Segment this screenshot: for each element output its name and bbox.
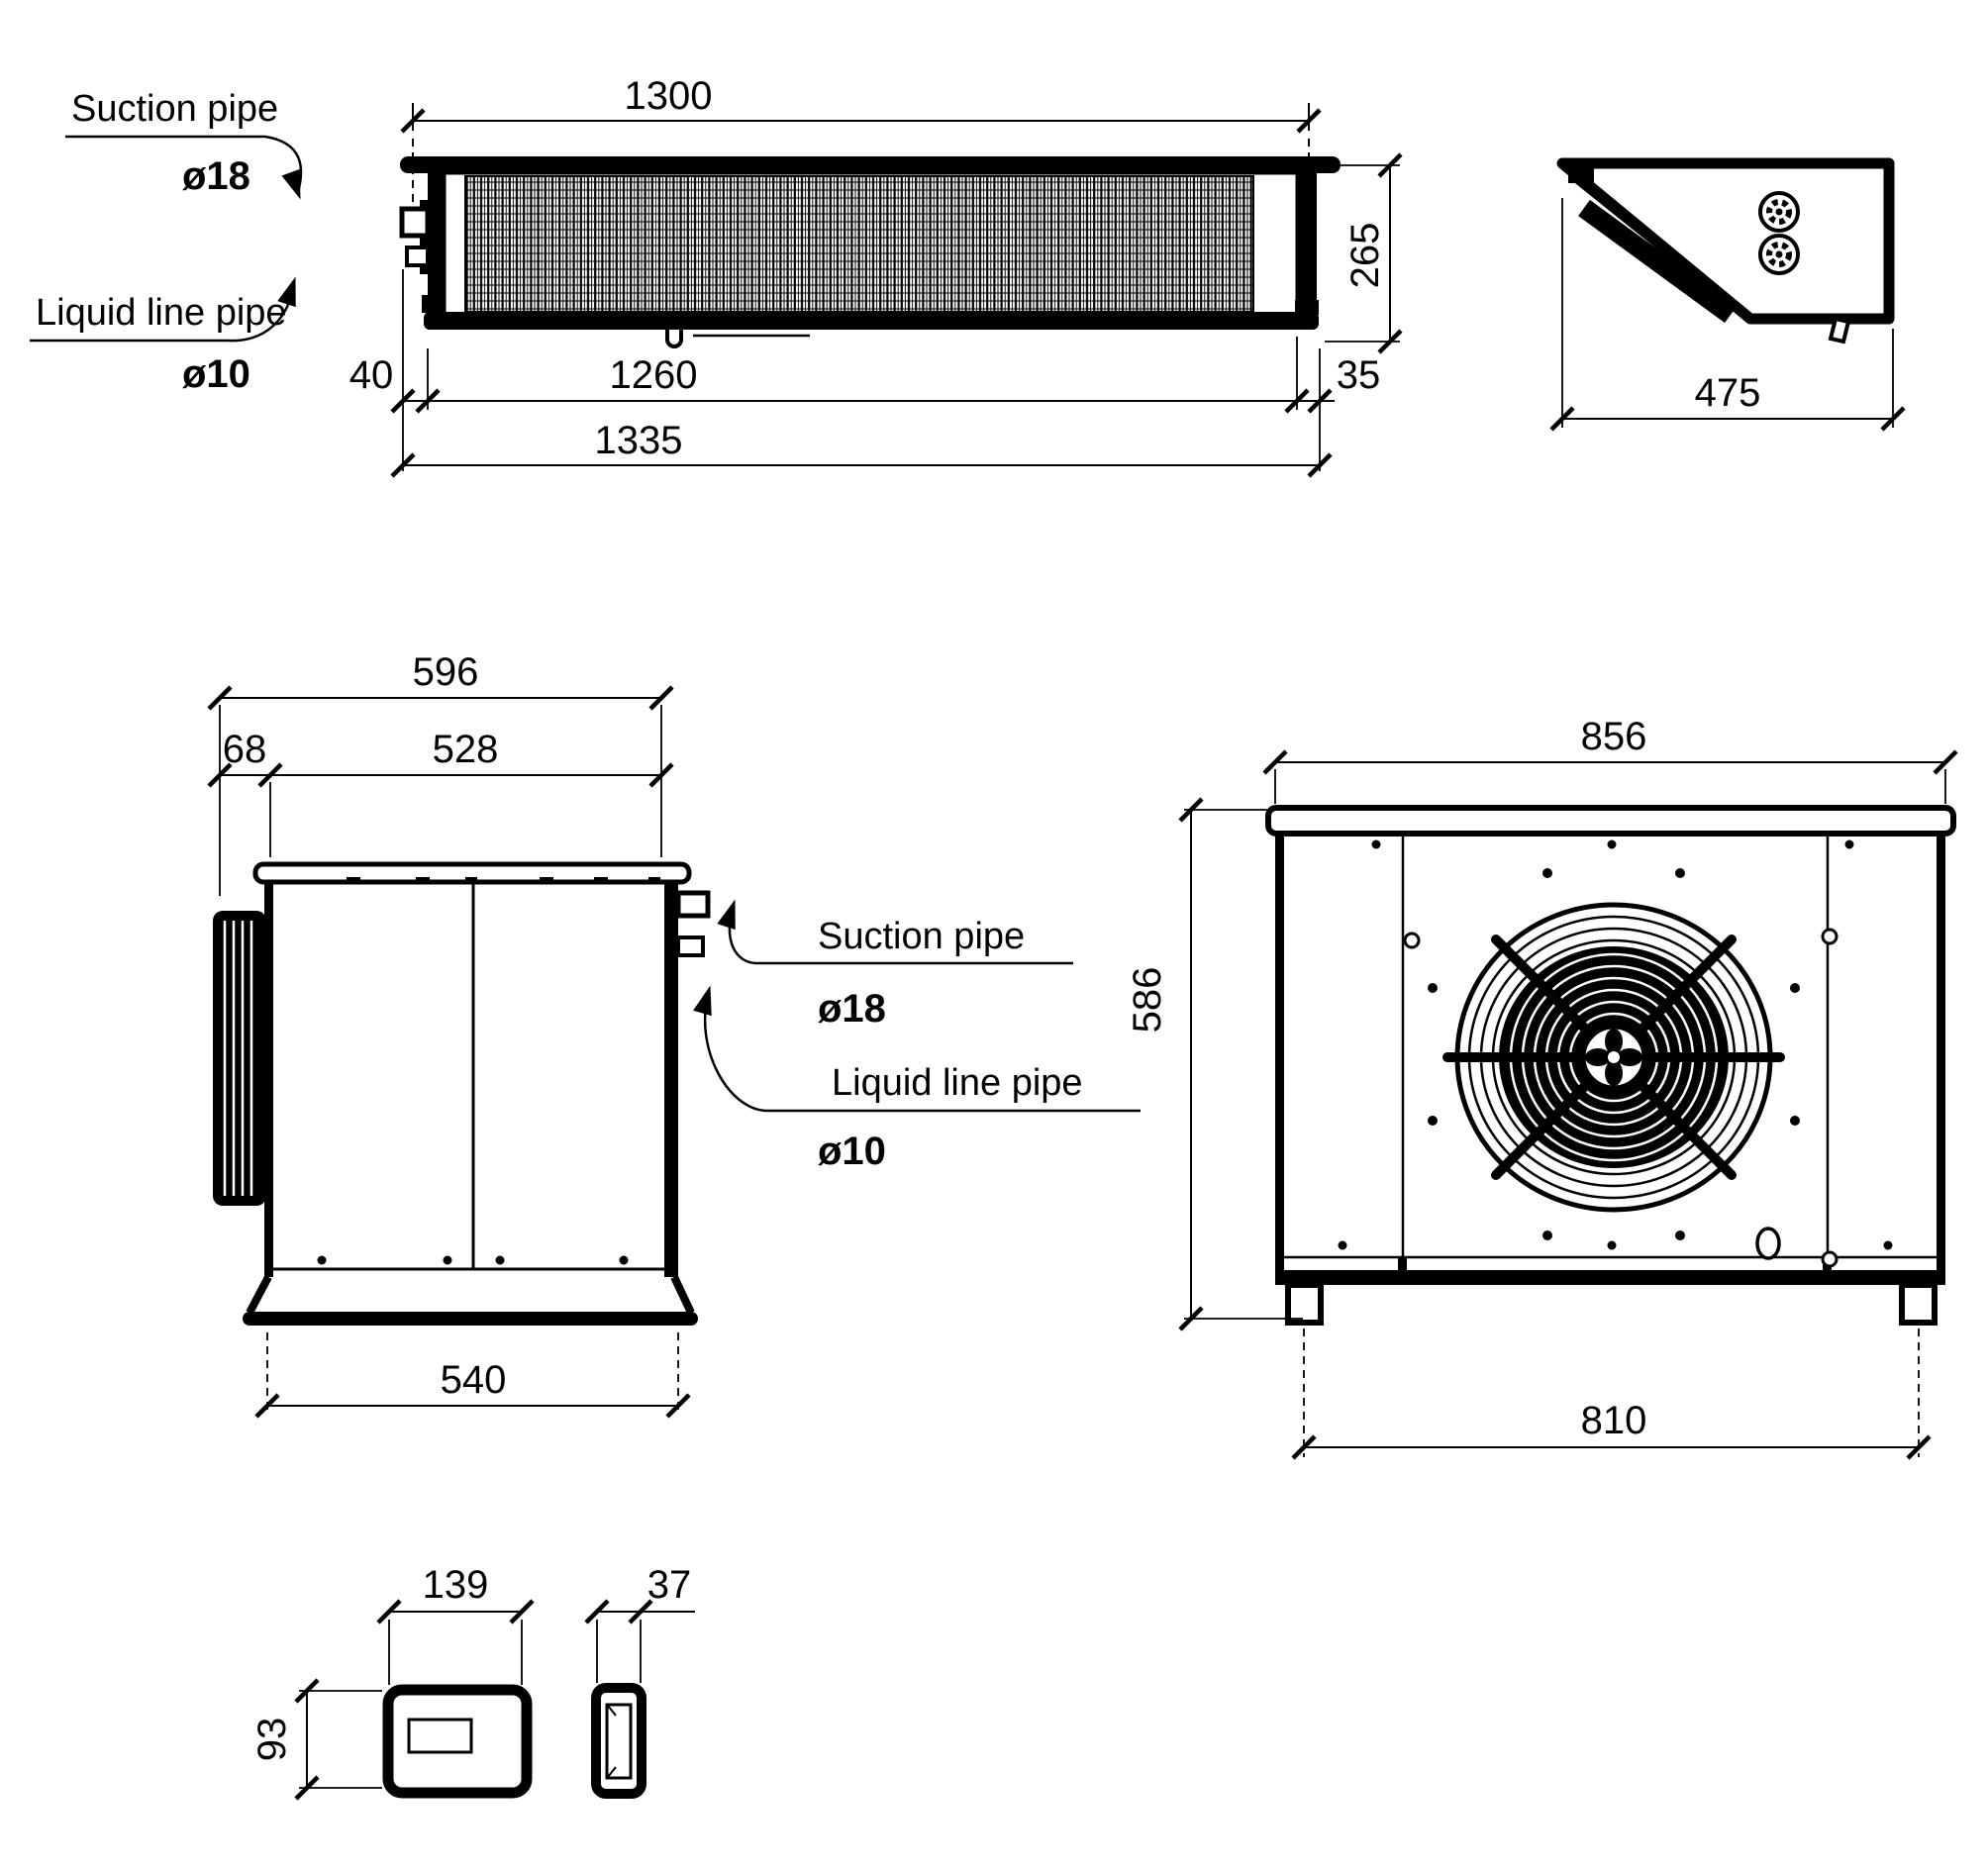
dim-unit-width: 856 [1581,715,1647,758]
top-rail [400,156,1341,173]
panel-hole [1405,934,1419,947]
dim-controller-width: 139 [423,1563,489,1607]
fan-motor-icon [1760,236,1798,273]
suction-pipe-label: Suction pipe [71,88,278,130]
condenser-coil-pack [213,911,273,1206]
skirt-left [249,1277,268,1313]
dim-end-offset: 35 [1337,353,1381,397]
technical-drawing-page: 1300 265 40 1260 35 1335 Suction pipe ø1… [0,0,1988,1871]
suction-diameter-label: ø18 [182,154,250,198]
controller-side-view: 37 [586,1563,695,1794]
suction-arrow-icon [282,170,308,202]
dimension-drawing-canvas: 1300 265 40 1260 35 1335 Suction pipe ø1… [0,0,1988,1871]
dim-evaporator-length: 1300 [625,74,713,118]
dim-coil-depth: 68 [223,728,267,771]
condensing-unit-pipe-labels: Suction pipe ø18 Liquid line pipe ø10 [694,898,1141,1173]
liquid-arrow-icon [278,275,303,306]
left-wall [1275,834,1284,1270]
dim-evaporator-height: 265 [1343,223,1387,289]
liquid-pipe-label: Liquid line pipe [36,292,287,334]
unit-lid [1268,808,1953,834]
suction-arrow-icon [718,898,743,929]
suction-pipe-label: Suction pipe [818,916,1025,957]
evaporator-pipe-labels: Suction pipe ø18 Liquid line pipe ø10 [30,88,308,396]
liquid-arrow-icon [694,985,719,1016]
bottom-rail [424,312,1319,330]
liquid-pipe-label: Liquid line pipe [832,1062,1083,1104]
suction-diameter-label: ø18 [818,987,886,1031]
fin-coil-hatch [465,176,1253,312]
dim-unit-height: 586 [1126,967,1169,1034]
panel-hole [1823,1252,1837,1266]
foot-left [1288,1285,1321,1323]
fan-guard [1447,905,1780,1210]
dim-unit-depth: 596 [413,650,479,694]
dim-pipe-offset: 40 [349,353,394,397]
drain-tab [667,330,681,346]
side-view-outline [1562,163,1889,319]
panel-slot [1757,1229,1779,1258]
left-step [422,295,445,313]
liquid-pipe-stub [678,937,703,955]
liquid-leader-line [705,992,768,1111]
liquid-diameter-label: ø10 [818,1130,886,1173]
controller-front-view: 139 93 [250,1563,533,1799]
liquid-pipe-stub [407,247,428,265]
condensing-unit-front-view: 856 586 810 [1126,715,1956,1458]
condensing-unit-side-view: 596 68 528 540 [209,650,708,1417]
right-wall [664,880,678,1277]
evaporator-side-view: 475 [1551,163,1904,430]
base-bar [243,1312,698,1326]
dim-body-depth: 528 [433,728,499,771]
evaporator-top-view [400,156,1341,346]
side-view-step [1568,168,1594,183]
dim-controller-depth: 37 [647,1563,692,1607]
suction-pipe-stub [678,893,708,916]
right-end-plate [1297,164,1317,315]
dim-total-length: 1335 [595,419,683,462]
skirt-right [674,1277,691,1313]
right-wall [1937,834,1945,1270]
foot-right [1902,1285,1935,1323]
fan-motor-icon [1760,193,1798,231]
dim-controller-height: 93 [250,1718,294,1762]
controller-display [409,1720,471,1752]
bottom-bar [1275,1270,1945,1285]
liquid-diameter-label: ø10 [182,352,250,396]
fan-hub [1584,1028,1643,1087]
panel-hole [1823,930,1837,943]
dim-base-depth: 540 [441,1358,507,1402]
dim-mounting-length: 1260 [610,353,698,397]
dim-feet-spacing: 810 [1581,1399,1647,1442]
suction-pipe-stub [402,209,428,236]
side-drain-stub [1831,319,1848,342]
dim-evaporator-depth: 475 [1695,371,1761,415]
